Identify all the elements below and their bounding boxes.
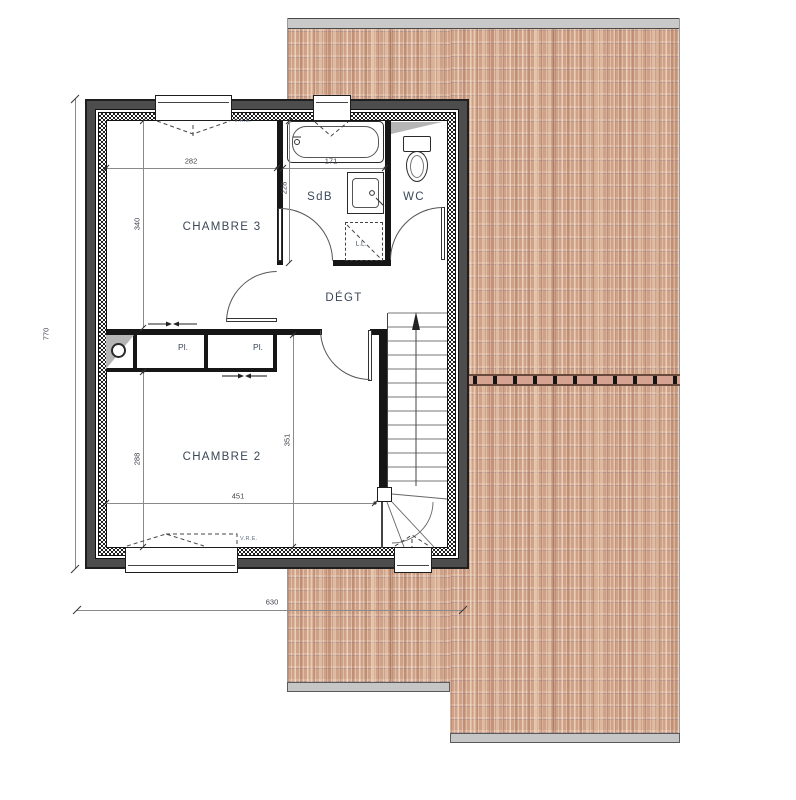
- closet-bottom-wall: [106, 368, 277, 372]
- closet-divider-3: [273, 335, 277, 372]
- room-label-wc: WC: [403, 191, 425, 203]
- bathtub-inner: [292, 126, 379, 158]
- roof-gutter-right: [450, 733, 680, 743]
- window-top-sdb: [313, 95, 351, 121]
- roof-gutter-left: [287, 682, 450, 692]
- vre-annotation-top: V.R.E.: [234, 118, 252, 124]
- dim-label-630: 630: [266, 598, 279, 607]
- dim-line-770: [75, 99, 76, 569]
- window-bottom-right: [394, 547, 432, 573]
- vre-annotation-bottom: V.R.E.: [240, 536, 258, 542]
- washing-machine-label: L.L.: [356, 241, 367, 248]
- roof-ridge-band: [460, 374, 680, 386]
- room-label-sdb: SdB: [307, 191, 333, 203]
- room-label-chambre2: CHAMBRE 2: [183, 451, 262, 463]
- closet-label-1: Pl.: [178, 342, 188, 352]
- toilet-tank: [403, 136, 431, 152]
- floor-plan-canvas: CHAMBRE 3 SdB WC DÉGT CHAMBRE 2 Pl. Pl. …: [0, 0, 796, 800]
- dim-label-282: 282: [185, 157, 198, 166]
- dim-line-282: [106, 168, 277, 169]
- wall-sdb-wc: [385, 120, 391, 263]
- sink: [347, 172, 384, 214]
- conduit-circle: [111, 343, 126, 358]
- dim-label-228: 228: [280, 182, 289, 195]
- dim-line-288: [143, 372, 144, 547]
- wall-chambre2-stairs: [379, 335, 387, 490]
- window-bottom-left: [125, 547, 238, 573]
- closet-label-2: Pl.: [253, 342, 263, 352]
- dim-line-171: [283, 168, 385, 169]
- toilet-bowl-inner: [410, 155, 424, 178]
- stairs-left-stringer: [387, 313, 388, 492]
- closet-divider-1: [133, 335, 137, 372]
- dim-label-288: 288: [133, 453, 142, 466]
- wall-middle: [106, 329, 322, 335]
- stairs-newel-post: [377, 487, 392, 502]
- dim-label-451: 451: [232, 492, 245, 501]
- room-label-degt: DÉGT: [325, 292, 362, 304]
- dim-line-630: [77, 610, 463, 611]
- dim-label-770: 770: [42, 328, 51, 341]
- dim-label-340: 340: [133, 218, 142, 231]
- roof-top-flashing: [287, 18, 680, 29]
- dim-label-171: 171: [325, 157, 338, 166]
- room-label-chambre3: CHAMBRE 3: [183, 221, 262, 233]
- sink-basin: [352, 178, 379, 208]
- window-top-left: [155, 95, 232, 121]
- dim-label-351: 351: [283, 434, 292, 447]
- dim-line-340: [143, 121, 144, 328]
- dim-line-351: [293, 335, 294, 547]
- closet-divider-2: [204, 335, 208, 372]
- dim-line-451: [106, 503, 375, 504]
- dim-line-228: [289, 121, 290, 263]
